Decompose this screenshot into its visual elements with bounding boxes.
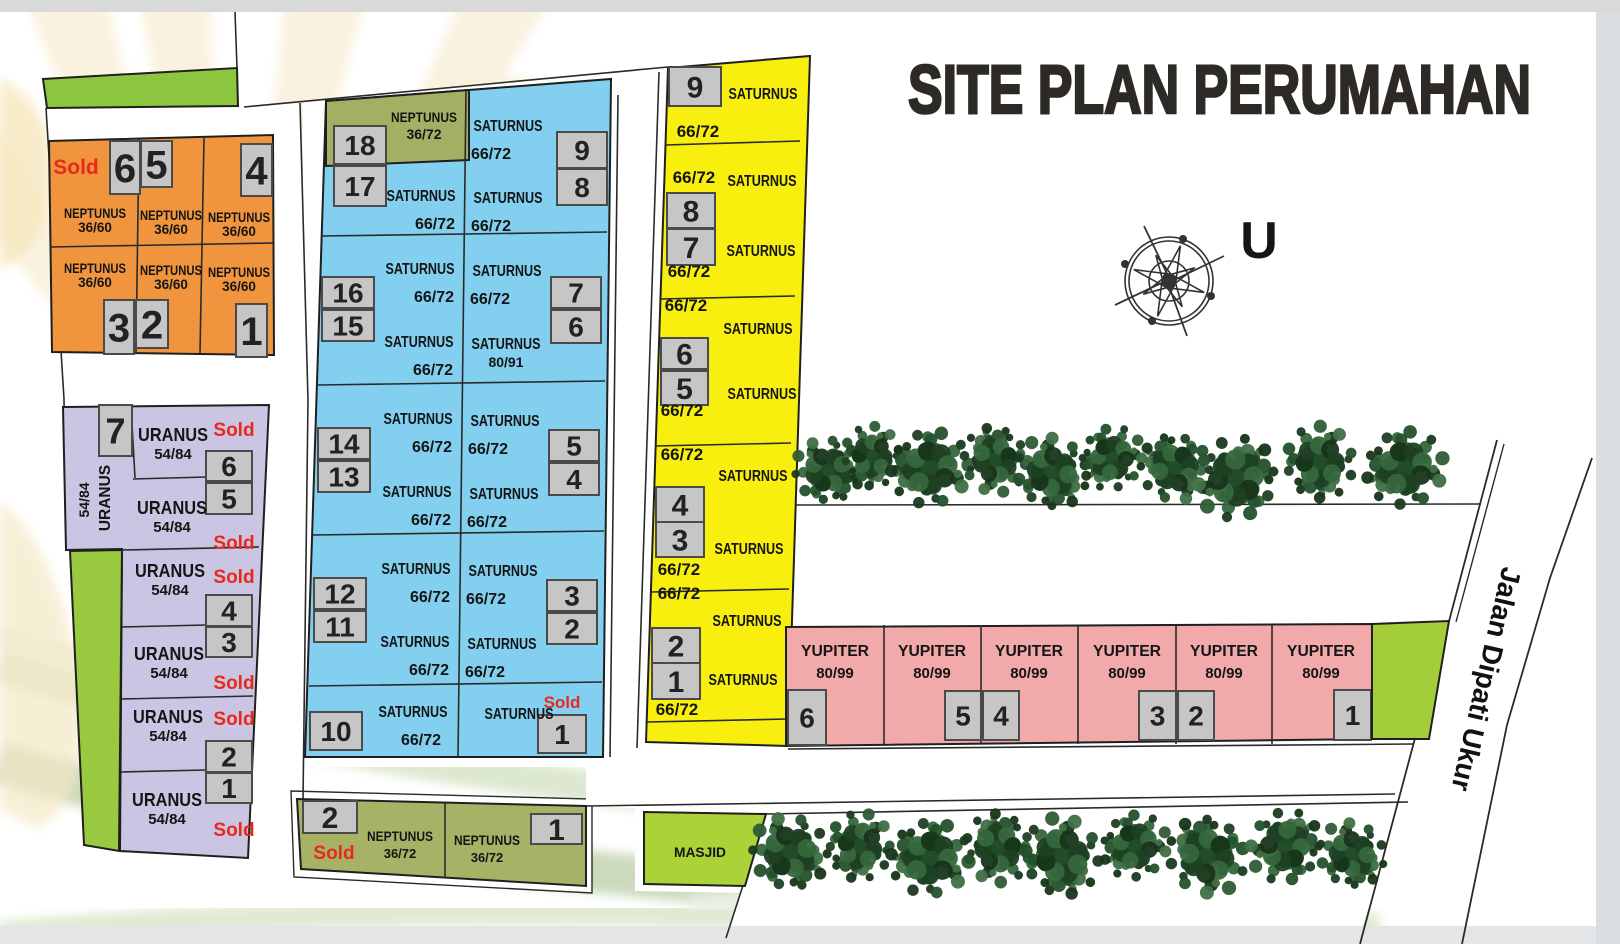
svg-text:1: 1 <box>1345 700 1361 731</box>
svg-text:YUPITER: YUPITER <box>801 643 869 660</box>
svg-text:NEPTUNUS: NEPTUNUS <box>454 832 520 848</box>
svg-text:36/60: 36/60 <box>222 279 256 294</box>
svg-text:2: 2 <box>141 303 163 347</box>
svg-text:SATURNUS: SATURNUS <box>472 336 541 353</box>
svg-text:Sold: Sold <box>544 693 581 712</box>
svg-text:SATURNUS: SATURNUS <box>474 190 543 207</box>
svg-text:URANUS: URANUS <box>132 790 202 810</box>
svg-text:1: 1 <box>554 719 570 750</box>
svg-text:NEPTUNUS: NEPTUNUS <box>64 206 126 221</box>
svg-text:80/99: 80/99 <box>1010 665 1048 682</box>
svg-text:66/72: 66/72 <box>468 441 508 458</box>
svg-text:9: 9 <box>574 135 590 166</box>
svg-text:4: 4 <box>993 701 1009 732</box>
svg-text:66/72: 66/72 <box>658 584 701 603</box>
svg-text:SATURNUS: SATURNUS <box>727 243 796 260</box>
svg-text:66/72: 66/72 <box>411 512 451 529</box>
svg-text:8: 8 <box>683 195 700 228</box>
svg-text:66/72: 66/72 <box>668 262 711 281</box>
svg-text:6: 6 <box>568 312 584 343</box>
svg-text:6: 6 <box>676 338 693 371</box>
svg-text:8: 8 <box>574 172 590 203</box>
svg-text:SATURNUS: SATURNUS <box>384 411 453 428</box>
svg-text:6: 6 <box>114 147 136 191</box>
svg-text:10: 10 <box>320 716 351 747</box>
svg-text:16: 16 <box>332 278 363 309</box>
svg-text:66/72: 66/72 <box>665 296 708 315</box>
svg-text:Sold: Sold <box>213 533 254 554</box>
svg-text:URANUS: URANUS <box>137 498 207 518</box>
svg-text:NEPTUNUS: NEPTUNUS <box>367 828 433 844</box>
svg-text:URANUS: URANUS <box>133 707 203 727</box>
svg-text:66/72: 66/72 <box>414 289 454 306</box>
svg-text:80/99: 80/99 <box>1108 665 1146 682</box>
svg-text:4: 4 <box>672 489 689 522</box>
svg-text:3: 3 <box>1150 701 1166 732</box>
svg-text:SATURNUS: SATURNUS <box>379 704 448 721</box>
svg-text:URANUS: URANUS <box>138 425 208 445</box>
svg-text:4: 4 <box>566 464 582 495</box>
svg-text:SATURNUS: SATURNUS <box>385 334 454 351</box>
svg-text:2: 2 <box>1188 701 1204 732</box>
svg-text:66/72: 66/72 <box>467 514 507 531</box>
svg-text:9: 9 <box>687 71 704 104</box>
svg-text:NEPTUNUS: NEPTUNUS <box>140 208 202 223</box>
svg-text:66/72: 66/72 <box>677 122 720 141</box>
svg-text:66/72: 66/72 <box>656 700 699 719</box>
svg-text:SATURNUS: SATURNUS <box>382 561 451 578</box>
svg-text:SATURNUS: SATURNUS <box>469 563 538 580</box>
svg-text:66/72: 66/72 <box>465 664 505 681</box>
svg-text:1: 1 <box>668 666 685 699</box>
svg-text:11: 11 <box>325 612 355 643</box>
svg-text:2: 2 <box>564 614 580 645</box>
svg-text:MASJID: MASJID <box>674 844 726 860</box>
svg-text:3: 3 <box>108 306 130 350</box>
svg-text:SATURNUS: SATURNUS <box>709 672 778 689</box>
svg-text:66/72: 66/72 <box>661 401 704 420</box>
svg-text:66/72: 66/72 <box>471 146 511 163</box>
svg-text:YUPITER: YUPITER <box>995 643 1063 660</box>
svg-text:U: U <box>1240 212 1278 270</box>
svg-text:SITE PLAN PERUMAHAN: SITE PLAN PERUMAHAN <box>908 51 1531 128</box>
svg-text:54/84: 54/84 <box>153 519 191 536</box>
svg-text:36/60: 36/60 <box>222 224 256 239</box>
svg-text:4: 4 <box>221 596 237 627</box>
svg-text:1: 1 <box>548 814 565 847</box>
svg-text:URANUS: URANUS <box>97 465 114 531</box>
svg-text:2: 2 <box>221 742 237 773</box>
svg-text:3: 3 <box>564 581 580 612</box>
svg-text:5: 5 <box>566 431 582 462</box>
svg-text:SATURNUS: SATURNUS <box>728 173 797 190</box>
svg-text:SATURNUS: SATURNUS <box>474 118 543 135</box>
svg-text:66/72: 66/72 <box>401 732 441 749</box>
svg-text:SATURNUS: SATURNUS <box>387 188 456 205</box>
svg-text:Sold: Sold <box>213 567 254 588</box>
svg-text:66/72: 66/72 <box>658 560 701 579</box>
svg-text:Sold: Sold <box>213 709 254 730</box>
svg-text:SATURNUS: SATURNUS <box>471 413 540 430</box>
svg-text:3: 3 <box>221 627 237 658</box>
svg-text:SATURNUS: SATURNUS <box>728 386 797 403</box>
svg-text:54/84: 54/84 <box>148 811 186 828</box>
svg-text:15: 15 <box>332 311 363 342</box>
svg-text:SATURNUS: SATURNUS <box>468 636 537 653</box>
svg-text:54/84: 54/84 <box>149 728 187 745</box>
svg-text:5: 5 <box>955 701 971 732</box>
svg-text:SATURNUS: SATURNUS <box>473 263 542 280</box>
svg-text:54/84: 54/84 <box>154 446 192 463</box>
svg-text:80/99: 80/99 <box>1302 665 1340 682</box>
svg-text:5: 5 <box>221 484 237 515</box>
svg-text:6: 6 <box>221 451 237 482</box>
svg-text:36/60: 36/60 <box>78 220 112 235</box>
svg-text:Sold: Sold <box>53 156 99 179</box>
svg-text:SATURNUS: SATURNUS <box>470 486 539 503</box>
svg-text:6: 6 <box>799 703 815 734</box>
svg-text:NEPTUNUS: NEPTUNUS <box>64 261 126 276</box>
svg-text:4: 4 <box>245 149 268 193</box>
svg-text:SATURNUS: SATURNUS <box>724 321 793 338</box>
svg-text:36/60: 36/60 <box>154 277 188 292</box>
svg-text:7: 7 <box>105 410 125 451</box>
svg-text:YUPITER: YUPITER <box>1190 643 1258 660</box>
svg-text:66/72: 66/72 <box>409 662 449 679</box>
svg-text:80/91: 80/91 <box>488 354 523 370</box>
svg-text:URANUS: URANUS <box>134 644 204 664</box>
svg-text:66/72: 66/72 <box>412 439 452 456</box>
svg-text:18: 18 <box>344 130 375 161</box>
svg-text:NEPTUNUS: NEPTUNUS <box>208 265 270 280</box>
svg-text:54/84: 54/84 <box>150 665 188 682</box>
svg-text:13: 13 <box>328 462 359 493</box>
svg-text:1: 1 <box>221 773 237 804</box>
svg-text:36/72: 36/72 <box>406 126 441 142</box>
svg-text:66/72: 66/72 <box>661 445 704 464</box>
svg-text:36/72: 36/72 <box>471 850 504 865</box>
svg-text:NEPTUNUS: NEPTUNUS <box>391 109 457 125</box>
svg-text:1: 1 <box>240 310 262 354</box>
svg-text:YUPITER: YUPITER <box>1287 643 1355 660</box>
svg-text:NEPTUNUS: NEPTUNUS <box>208 210 270 225</box>
svg-text:NEPTUNUS: NEPTUNUS <box>140 263 202 278</box>
svg-text:URANUS: URANUS <box>135 561 205 581</box>
svg-text:12: 12 <box>324 579 355 610</box>
svg-text:7: 7 <box>568 278 584 309</box>
svg-text:54/84: 54/84 <box>76 482 92 517</box>
svg-text:36/60: 36/60 <box>78 275 112 290</box>
svg-text:66/72: 66/72 <box>410 589 450 606</box>
svg-text:2: 2 <box>668 630 685 663</box>
svg-text:80/99: 80/99 <box>913 665 951 682</box>
svg-text:7: 7 <box>683 232 700 265</box>
svg-text:SATURNUS: SATURNUS <box>715 541 784 558</box>
svg-text:66/72: 66/72 <box>415 216 455 233</box>
svg-text:SATURNUS: SATURNUS <box>729 86 798 103</box>
svg-text:17: 17 <box>344 171 375 202</box>
svg-text:66/72: 66/72 <box>413 362 453 379</box>
svg-text:Sold: Sold <box>313 843 354 864</box>
svg-text:SATURNUS: SATURNUS <box>383 484 452 501</box>
svg-text:5: 5 <box>145 143 167 187</box>
svg-text:66/72: 66/72 <box>673 168 716 187</box>
svg-text:YUPITER: YUPITER <box>1093 643 1161 660</box>
svg-text:YUPITER: YUPITER <box>898 643 966 660</box>
svg-text:2: 2 <box>322 802 339 835</box>
svg-text:66/72: 66/72 <box>471 218 511 235</box>
svg-text:3: 3 <box>672 524 689 557</box>
svg-text:36/72: 36/72 <box>384 846 417 861</box>
svg-text:66/72: 66/72 <box>470 291 510 308</box>
svg-text:Sold: Sold <box>213 820 254 841</box>
svg-text:SATURNUS: SATURNUS <box>386 261 455 278</box>
svg-text:SATURNUS: SATURNUS <box>719 468 788 485</box>
svg-text:SATURNUS: SATURNUS <box>381 634 450 651</box>
svg-text:54/84: 54/84 <box>151 582 189 599</box>
svg-text:80/99: 80/99 <box>1205 665 1243 682</box>
svg-text:80/99: 80/99 <box>816 665 854 682</box>
svg-text:36/60: 36/60 <box>154 222 188 237</box>
svg-text:14: 14 <box>328 429 360 460</box>
svg-text:Sold: Sold <box>213 420 254 441</box>
svg-text:66/72: 66/72 <box>466 591 506 608</box>
svg-text:Sold: Sold <box>213 673 254 694</box>
svg-text:SATURNUS: SATURNUS <box>713 613 782 630</box>
